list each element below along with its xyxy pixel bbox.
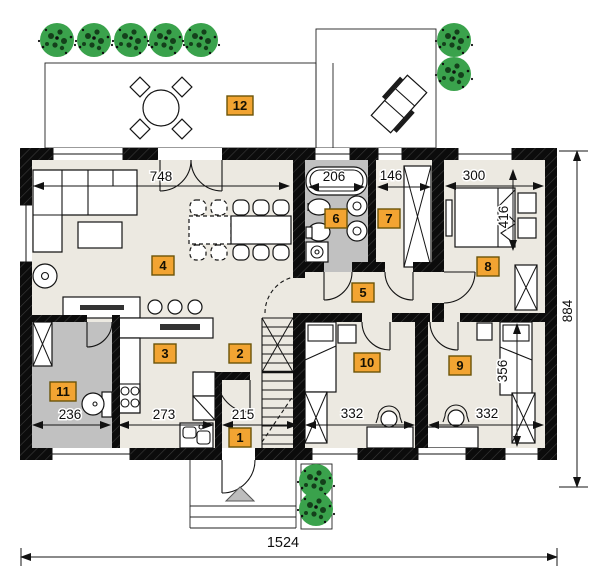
room-label-6: 6 bbox=[325, 209, 347, 228]
window-bottom-wc bbox=[52, 448, 130, 460]
window-top-bedroom8 bbox=[458, 148, 512, 160]
room-label-3: 3 bbox=[154, 344, 176, 363]
svg-text:6: 6 bbox=[332, 211, 339, 226]
room-label-12: 12 bbox=[227, 96, 253, 115]
bed-room9 bbox=[500, 322, 532, 395]
wardrobe-bedroom8 bbox=[515, 265, 537, 310]
room-label-1: 1 bbox=[229, 428, 251, 447]
desk-room9 bbox=[427, 427, 478, 448]
nightstand bbox=[338, 325, 356, 343]
svg-text:5: 5 bbox=[359, 285, 366, 300]
dim-hall: 215 bbox=[232, 407, 255, 422]
wardrobe-wc bbox=[33, 322, 52, 366]
toilet bbox=[82, 392, 112, 417]
room-label-4: 4 bbox=[152, 256, 174, 275]
svg-text:1: 1 bbox=[236, 430, 243, 445]
bed-room10 bbox=[305, 322, 336, 392]
dresser bbox=[446, 200, 452, 236]
svg-text:3: 3 bbox=[161, 346, 168, 361]
entrance-porch bbox=[190, 460, 296, 528]
dim-building-depth: 884 bbox=[560, 299, 575, 322]
side-table bbox=[33, 264, 57, 288]
coffee-table bbox=[78, 222, 122, 248]
entrance-arrow bbox=[226, 487, 254, 501]
dim-living-width: 748 bbox=[150, 169, 173, 184]
room-label-9: 9 bbox=[449, 356, 471, 375]
svg-text:4: 4 bbox=[159, 258, 167, 273]
room-label-7: 7 bbox=[378, 209, 400, 228]
dim-room9: 332 bbox=[476, 406, 499, 421]
dim-kitchen: 273 bbox=[153, 407, 176, 422]
svg-text:8: 8 bbox=[484, 259, 491, 274]
wardrobe-room10 bbox=[305, 392, 327, 443]
svg-text:12: 12 bbox=[233, 98, 247, 113]
lounge-chair bbox=[368, 72, 430, 136]
room-label-10: 10 bbox=[354, 353, 380, 372]
dim-room10: 332 bbox=[341, 406, 364, 421]
window-bottom-room9b bbox=[505, 448, 538, 460]
fridge bbox=[193, 372, 215, 420]
dining-table bbox=[189, 200, 291, 260]
window-bottom-room9 bbox=[418, 448, 466, 460]
terrace-table bbox=[130, 77, 192, 139]
svg-text:9: 9 bbox=[456, 358, 463, 373]
floor-plan-svg: 748 206 146 300 416 884 236 273 215 332 … bbox=[0, 0, 600, 585]
washing-machine bbox=[306, 242, 328, 262]
wardrobe-closet bbox=[404, 166, 431, 267]
nightstand bbox=[518, 218, 536, 238]
room-label-5: 5 bbox=[352, 283, 374, 302]
nightstand bbox=[477, 323, 492, 340]
floor-plan-page: 748 206 146 300 416 884 236 273 215 332 … bbox=[0, 0, 600, 585]
dim-bedroom8-width: 300 bbox=[463, 168, 486, 183]
svg-text:11: 11 bbox=[56, 384, 70, 399]
dim-room9-depth: 356 bbox=[495, 360, 510, 383]
window-top-closet bbox=[378, 148, 402, 160]
window-top-living bbox=[53, 148, 123, 160]
kitchen-sink bbox=[180, 423, 213, 448]
wardrobe-room9 bbox=[512, 393, 535, 443]
svg-text:10: 10 bbox=[360, 355, 374, 370]
dim-closet: 146 bbox=[380, 168, 403, 183]
dim-wc: 236 bbox=[59, 407, 82, 422]
planter bbox=[297, 464, 335, 529]
nightstand bbox=[518, 193, 536, 213]
window-left-living bbox=[20, 205, 32, 262]
dim-bathtub: 206 bbox=[323, 169, 346, 184]
kitchen-island bbox=[63, 297, 140, 318]
room-label-11: 11 bbox=[50, 382, 76, 401]
room-label-2: 2 bbox=[229, 344, 251, 363]
window-bottom-room10 bbox=[312, 448, 358, 460]
dim-building-width: 1524 bbox=[267, 535, 299, 551]
room-label-8: 8 bbox=[477, 257, 499, 276]
window-top-bathroom bbox=[315, 148, 350, 160]
bar-stools bbox=[148, 300, 202, 314]
desk-room10 bbox=[367, 427, 413, 448]
svg-text:7: 7 bbox=[385, 211, 392, 226]
svg-text:2: 2 bbox=[236, 346, 243, 361]
dim-bedroom8-depth: 416 bbox=[496, 206, 511, 229]
entrance-door bbox=[222, 448, 255, 493]
